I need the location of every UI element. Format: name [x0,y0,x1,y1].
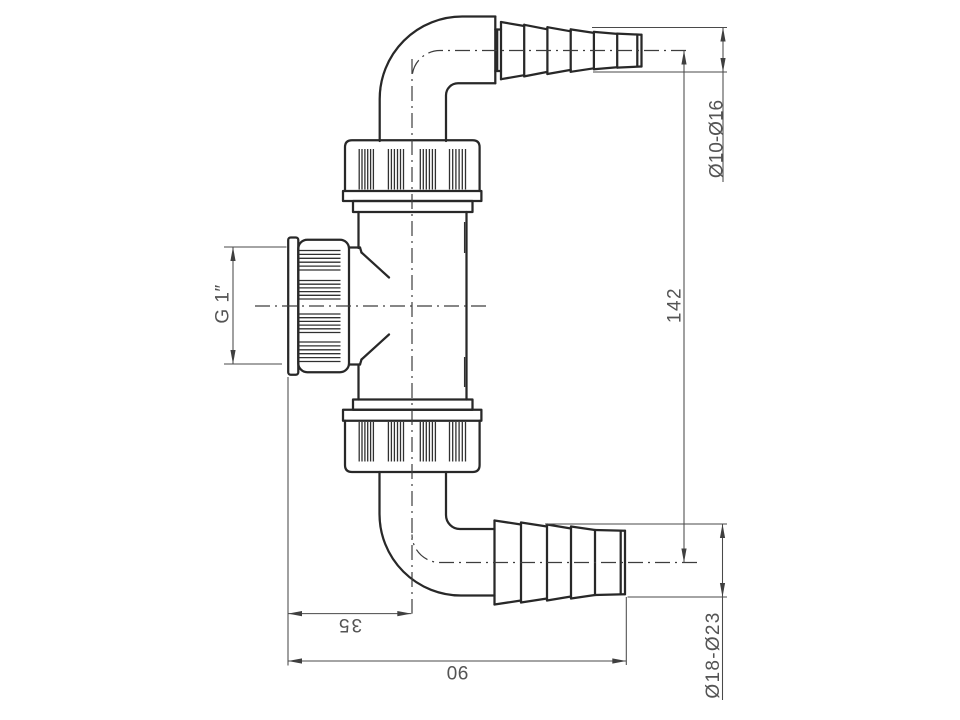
svg-text:G 1″: G 1″ [213,284,234,323]
svg-text:90: 90 [446,661,468,682]
svg-text:35: 35 [337,614,362,635]
svg-text:Ø18-Ø23: Ø18-Ø23 [703,611,724,698]
svg-text:142: 142 [665,287,686,323]
svg-text:Ø10-Ø16: Ø10-Ø16 [707,100,728,178]
